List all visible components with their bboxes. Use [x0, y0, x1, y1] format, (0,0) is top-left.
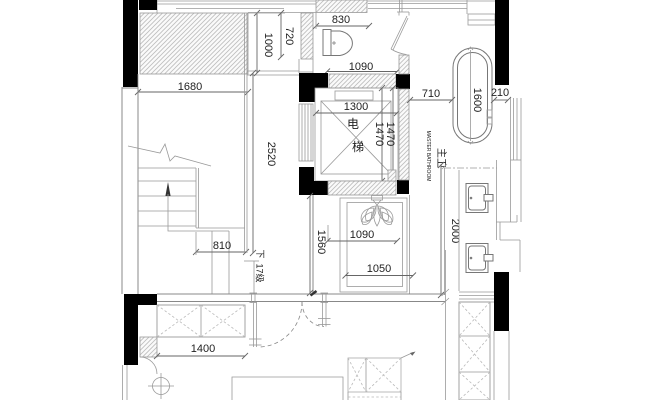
svg-text:下: 下 [255, 249, 265, 258]
svg-text:710: 710 [422, 88, 440, 100]
svg-text:电: 电 [347, 117, 359, 131]
svg-text:1400: 1400 [191, 343, 215, 355]
svg-text:梯: 梯 [352, 140, 364, 154]
svg-text:1470: 1470 [384, 122, 396, 146]
svg-text:1090: 1090 [349, 61, 373, 73]
svg-text:720: 720 [283, 27, 295, 45]
svg-text:1470: 1470 [373, 122, 385, 146]
svg-text:2520: 2520 [265, 142, 277, 166]
svg-text:1050: 1050 [367, 263, 391, 275]
svg-text:1560: 1560 [315, 230, 327, 254]
svg-text:810: 810 [213, 240, 231, 252]
svg-text:210: 210 [491, 87, 509, 99]
svg-text:1600: 1600 [471, 88, 483, 112]
svg-text:MASTER BATHROOM: MASTER BATHROOM [425, 131, 431, 182]
svg-text:17级: 17级 [255, 263, 266, 282]
svg-text:1090: 1090 [350, 229, 374, 241]
svg-text:1300: 1300 [344, 101, 368, 113]
svg-text:1680: 1680 [178, 81, 202, 93]
svg-text:1000: 1000 [262, 33, 274, 57]
svg-text:830: 830 [332, 14, 350, 26]
